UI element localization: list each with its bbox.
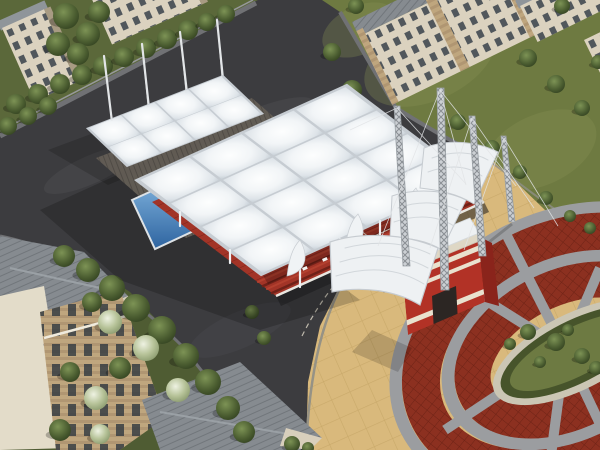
tree: [584, 222, 596, 234]
tree: [562, 324, 574, 336]
tree: [173, 343, 199, 369]
tree: [98, 310, 122, 334]
tree: [88, 1, 110, 23]
tree: [122, 294, 150, 322]
tree: [323, 43, 341, 61]
tree: [82, 292, 102, 312]
tree: [72, 65, 92, 85]
tree: [217, 5, 235, 23]
tree: [450, 114, 466, 130]
tree: [53, 245, 75, 267]
tree: [133, 335, 159, 361]
tree: [216, 396, 240, 420]
tree: [574, 100, 590, 116]
tree: [564, 210, 576, 222]
tree: [39, 97, 57, 115]
tree: [19, 107, 37, 125]
tree: [67, 43, 89, 65]
tree: [195, 369, 221, 395]
tree: [519, 49, 537, 67]
tree: [574, 348, 590, 364]
tree: [534, 356, 546, 368]
tree: [90, 424, 110, 444]
tree: [93, 56, 113, 76]
tree: [53, 3, 79, 29]
tree: [49, 419, 71, 441]
tree: [166, 378, 190, 402]
render-viewport: [0, 0, 600, 450]
tree: [233, 421, 255, 443]
tree: [46, 32, 70, 56]
tree: [136, 38, 156, 58]
tree: [76, 258, 100, 282]
tree: [157, 29, 177, 49]
tree: [109, 357, 131, 379]
tree: [84, 386, 108, 410]
tree: [60, 362, 80, 382]
tree: [520, 324, 536, 340]
tree: [76, 22, 100, 46]
tree: [257, 331, 271, 345]
aerial-render: [0, 0, 600, 450]
tree: [50, 74, 70, 94]
tree: [114, 47, 134, 67]
tree: [198, 13, 216, 31]
tree: [547, 75, 565, 93]
tree: [504, 338, 516, 350]
tree: [547, 333, 565, 351]
